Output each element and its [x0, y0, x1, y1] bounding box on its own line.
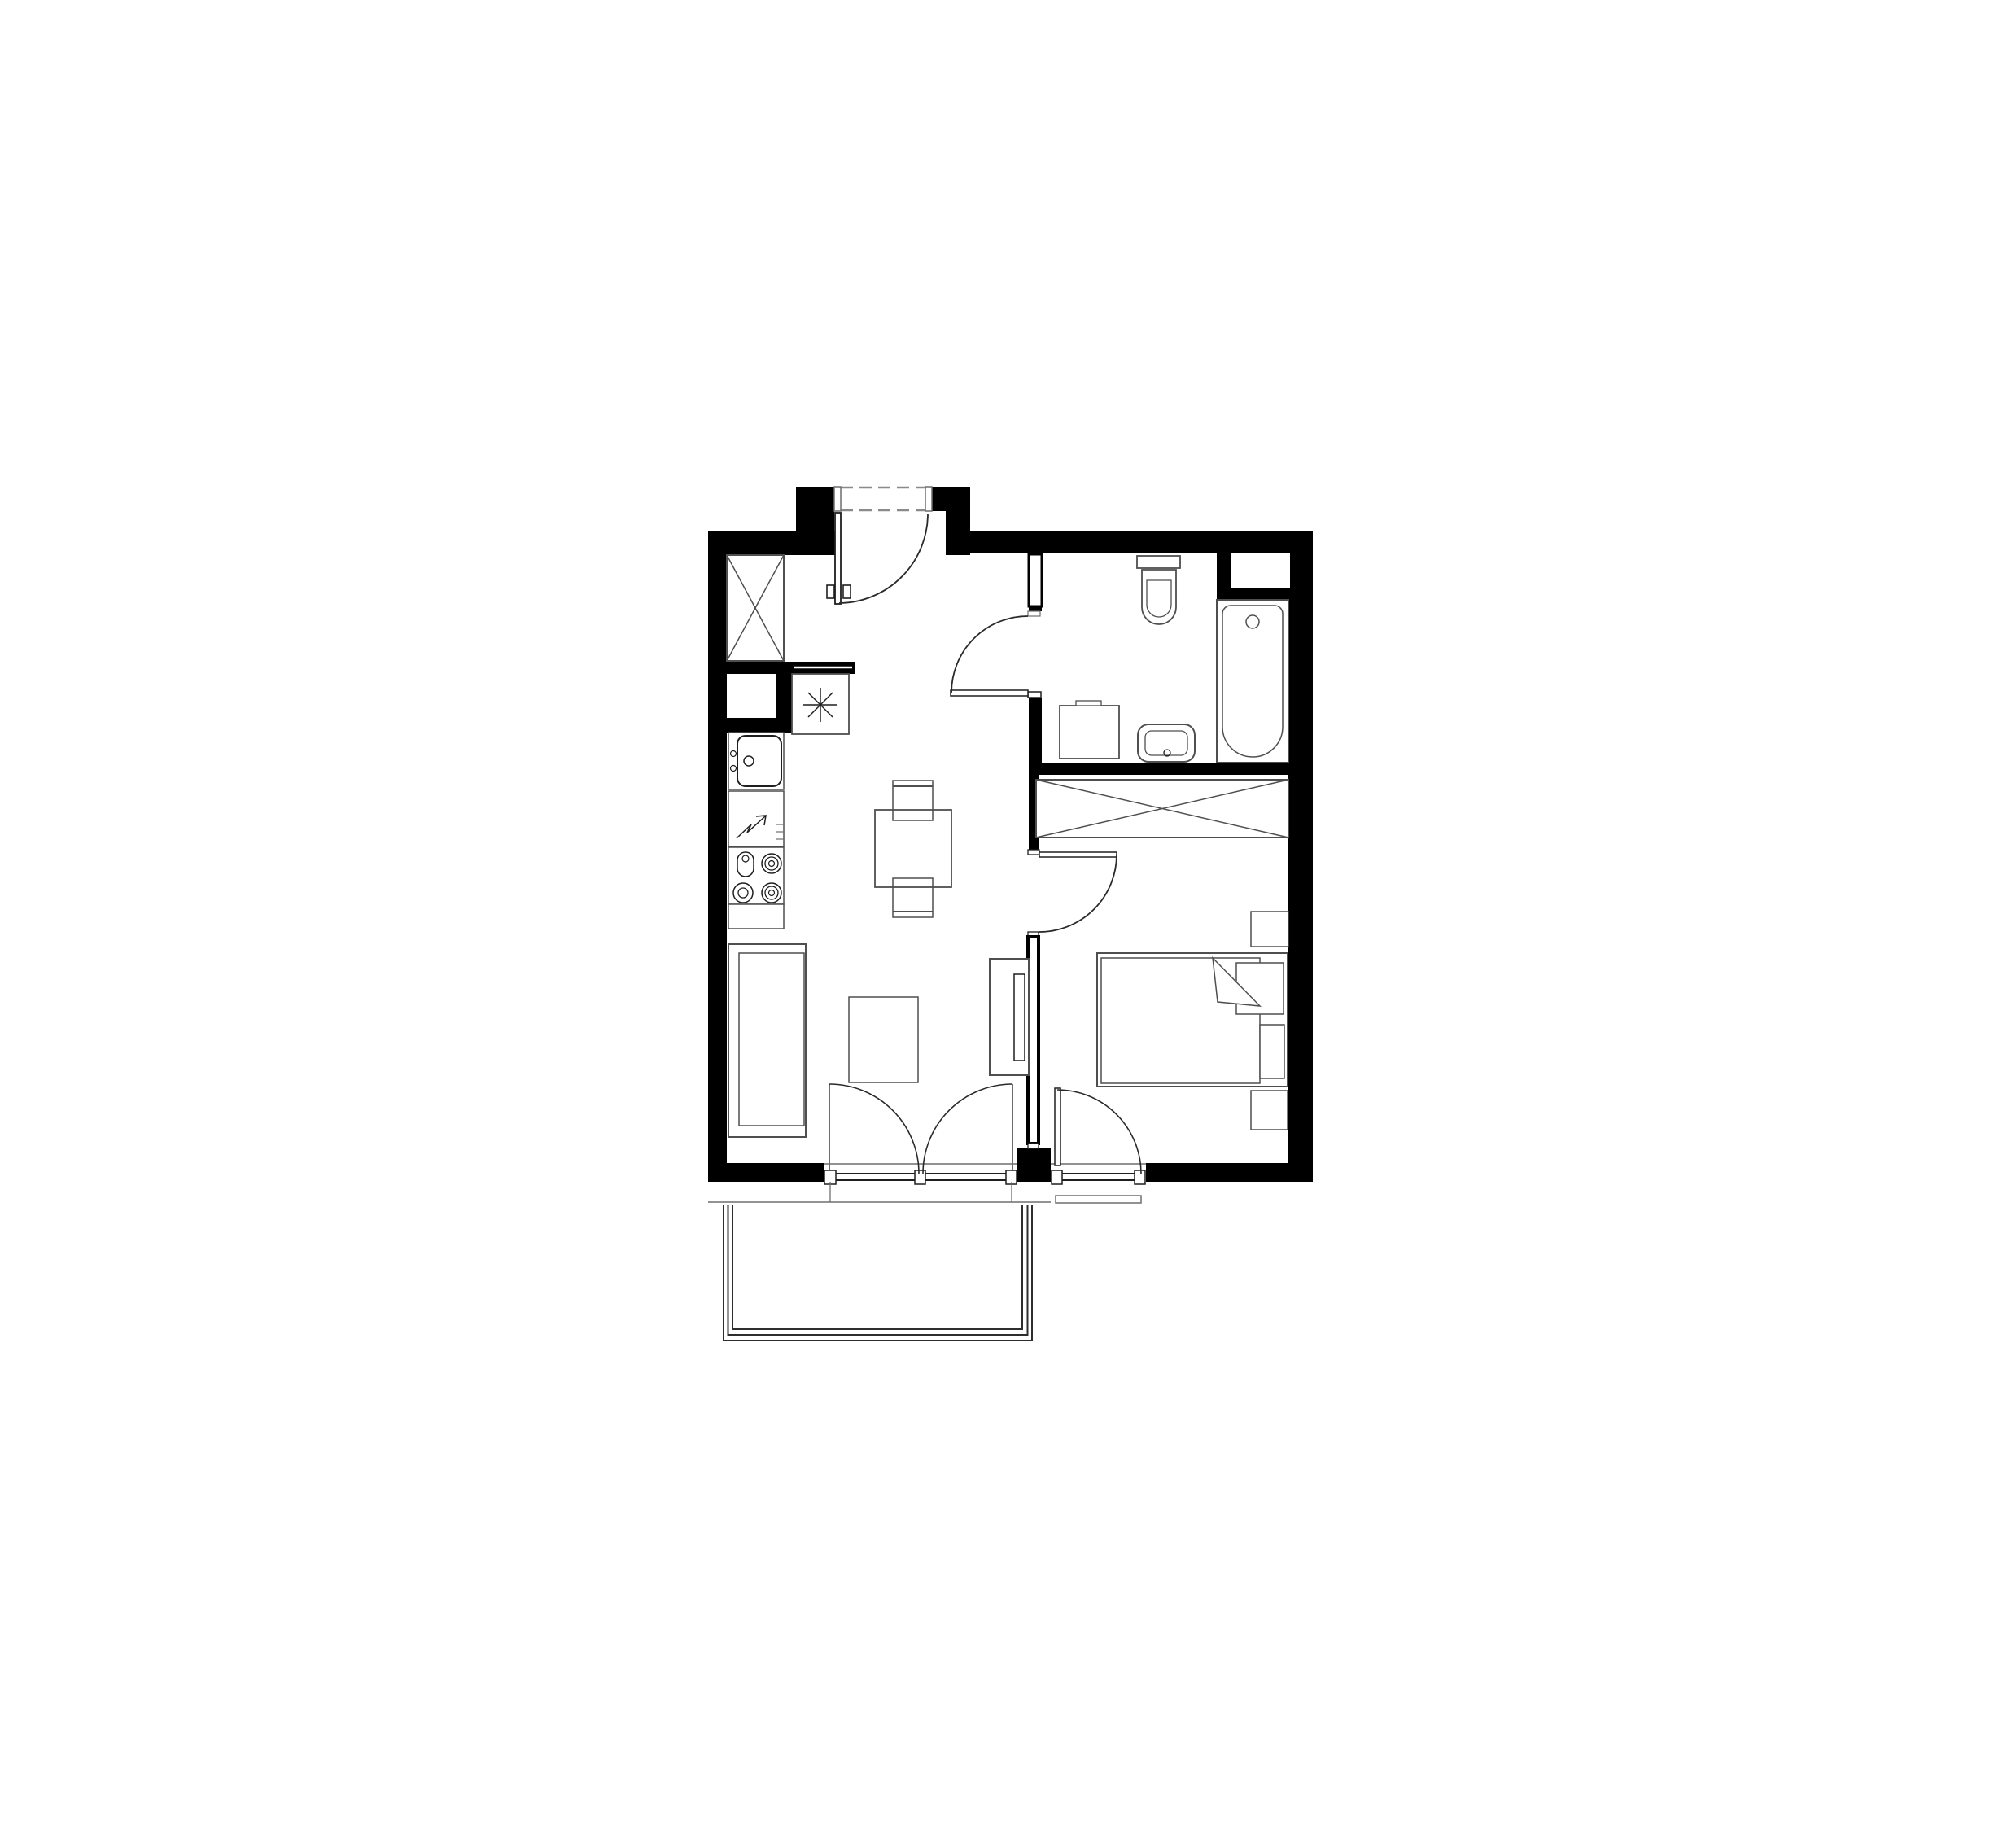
bedroom-window-mullion-right [1135, 1170, 1145, 1184]
tv [1014, 974, 1025, 1061]
nightstand-north [1251, 912, 1288, 947]
partition-bath-mid [1029, 698, 1042, 765]
entry-door-handle-left [827, 585, 834, 598]
kitchen-cabinet-end [728, 904, 784, 929]
entry-jamb-right [925, 487, 932, 511]
toilet-tank [1137, 556, 1180, 568]
stove-burner-bl-outer [733, 883, 753, 903]
bed-pillow-2 [1260, 1025, 1284, 1078]
bathtub [1217, 600, 1288, 763]
armchair [849, 997, 918, 1082]
washing-machine-drawer [1076, 701, 1101, 706]
bathroom-door-leaf [951, 690, 1028, 696]
entry-pier-right-step [946, 511, 970, 555]
floor-plan-svg [0, 0, 2016, 1828]
partition-bedroom-cap-bottom [1028, 1144, 1039, 1148]
bedroom-french-door-leaf [1055, 1088, 1060, 1165]
kitchen-sink-faucet [744, 756, 754, 766]
stove-burner-tl-dot [742, 855, 749, 862]
entry-door-leaf [835, 513, 841, 604]
balcony-rail-inner [732, 1205, 1022, 1329]
bedroom-door-swing [1039, 855, 1117, 932]
bedroom-door-leaf [1039, 852, 1117, 857]
floor-plan-canvas [0, 0, 2016, 1828]
kitchen-sink-knob-2 [731, 766, 737, 772]
sofa-seat [739, 953, 804, 1126]
balcony-rail-middle [728, 1205, 1028, 1335]
partition-closet-west-cap [1028, 850, 1039, 855]
balcony-rail-outer [724, 1205, 1032, 1340]
pillar [1017, 1148, 1051, 1182]
wall-top [970, 531, 1313, 553]
entry-door-swing [839, 514, 928, 603]
partition-bath-stub-cap-black [1029, 606, 1042, 611]
partition-bath-stub-top [1029, 554, 1042, 606]
entry-pier-right [932, 487, 970, 511]
dining-table [875, 810, 951, 887]
living-balcony-door-swing-right [923, 1084, 1012, 1174]
bathroom-door-swing [951, 616, 1028, 693]
partition-bath-stub-cap-white [1028, 611, 1040, 616]
kitchen-shaft-wall-top [727, 662, 792, 674]
bedroom-french-door-swing [1057, 1090, 1141, 1174]
corner-shaft-niche [1231, 553, 1290, 588]
kitchen-sink-knob-1 [731, 751, 737, 757]
entry-jamb-left [834, 487, 841, 511]
partition-bath-mid-cap [1028, 692, 1041, 698]
wall-right [1288, 531, 1313, 1182]
washing-machine [1060, 706, 1119, 759]
living-door-mullion-center [915, 1170, 925, 1184]
wall-bottom-right [1146, 1163, 1313, 1182]
kitchen-shaft-wall-bottom [727, 718, 792, 733]
living-balcony-door-swing-left [829, 1084, 919, 1174]
bedroom-exterior-sill [1056, 1196, 1141, 1203]
entry-door-handle-right [843, 585, 851, 598]
wall-bottom-left [708, 1163, 824, 1182]
kitchen-shaft-wall-right [776, 674, 792, 718]
entry-pier-left [796, 487, 834, 555]
nightstand-south [1251, 1091, 1288, 1130]
bedroom-window-mullion-left [1052, 1170, 1062, 1184]
wall-left [708, 531, 727, 1182]
wall-bathroom-south [1029, 763, 1290, 775]
